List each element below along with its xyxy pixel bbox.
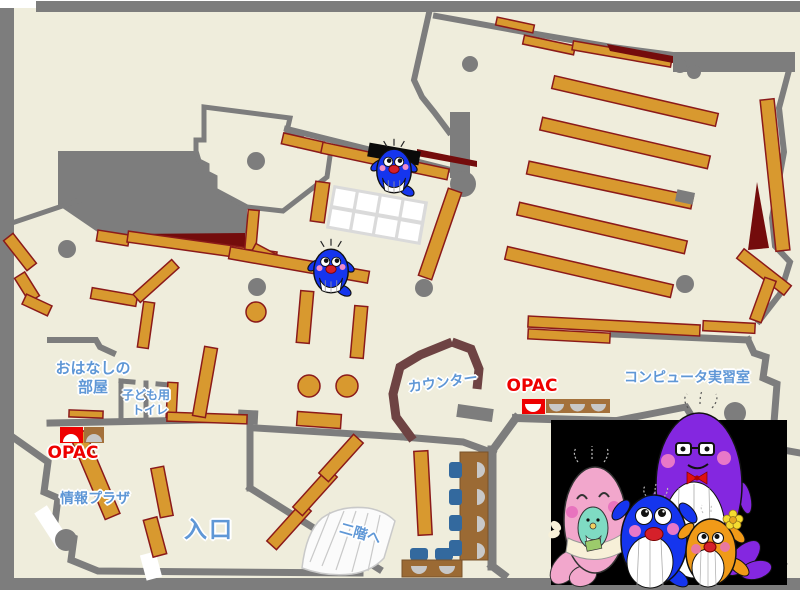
label-storytelling-room-line1: おはなしの [38, 360, 148, 377]
label-kids-toilet-line1: 子ども用 [118, 389, 174, 402]
opac-terminal-center [522, 399, 610, 414]
label-computer-room: コンピュータ実習室 [622, 371, 752, 386]
label-opac-left: OPAC [46, 444, 100, 463]
label-kids-toilet-line2: トイレ [122, 404, 178, 417]
opac-terminal-left [60, 427, 104, 443]
library-floor-map: おはなしの 部屋 子ども用 トイレ OPAC 情報プラザ 入口 カウンター OP… [0, 0, 800, 590]
label-opac-center: OPAC [505, 377, 559, 396]
label-entrance: 入口 [180, 518, 238, 543]
whale-family-photo [544, 391, 787, 590]
label-info-plaza: 情報プラザ [50, 492, 140, 507]
